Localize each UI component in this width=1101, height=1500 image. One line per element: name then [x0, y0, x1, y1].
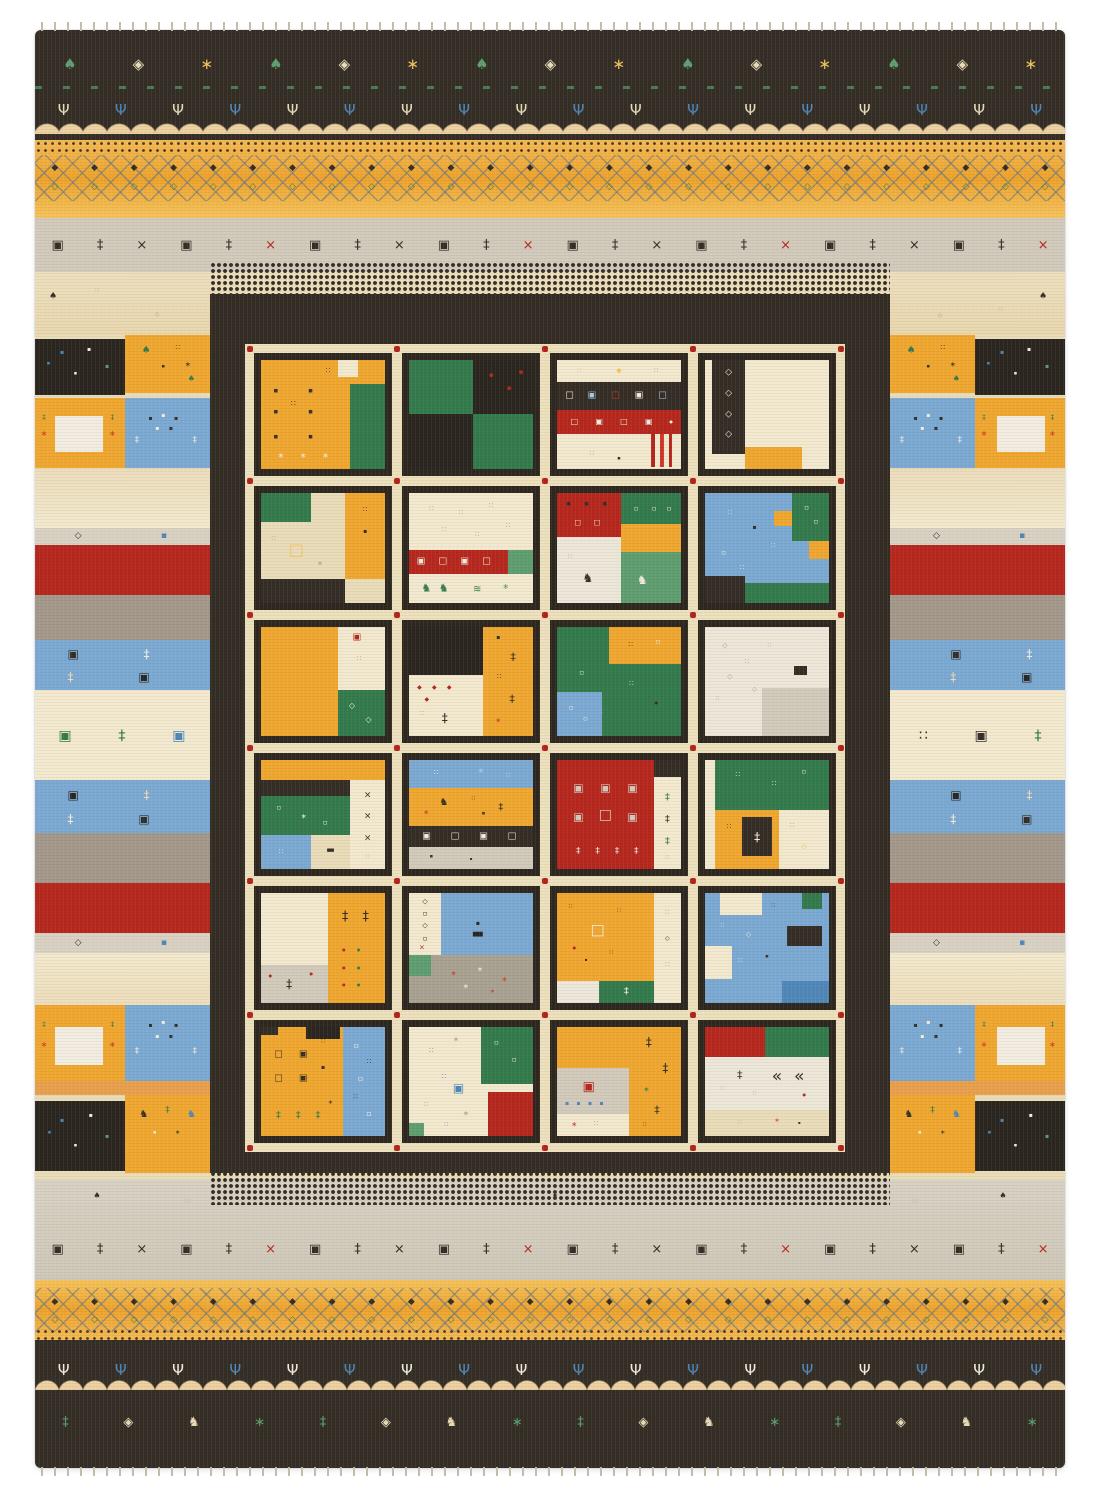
motif-glyph: ▪ [174, 1023, 178, 1029]
motif-glyph: ◆ [289, 1298, 296, 1307]
grid-cell-r6c2: ∷∗∷▣∷∗∷▫▫ [402, 1020, 540, 1143]
motif-glyph: ∷ [441, 1073, 445, 1080]
motif-glyph: ∷ [185, 1199, 189, 1205]
patch-block: ♞ [621, 552, 681, 602]
motif-glyph: ∷ [715, 696, 719, 702]
motif-glyph: ◇ [844, 1316, 851, 1325]
motif-glyph: ∷ [568, 554, 572, 560]
motif-glyph: ◇ [487, 183, 494, 192]
patch-block [997, 416, 1045, 452]
motif-glyph: ∷ [753, 1091, 757, 1097]
grid-corner-dot [690, 1145, 696, 1151]
motif-glyph: ▣ [180, 239, 192, 252]
motif-glyph: ▫ [423, 911, 428, 918]
motif-glyph: ◈ [381, 1416, 391, 1429]
motif-glyph: ▣ [58, 729, 71, 743]
motif-glyph: ◇ [368, 183, 375, 192]
motif-glyph: ▫ [358, 1075, 363, 1083]
motif-glyph: ▪ [585, 958, 588, 962]
patch-block: ◇▫◇▫× [409, 893, 441, 954]
grid-corner-dot [247, 1012, 253, 1018]
motif-glyph: Ψ [973, 103, 985, 118]
motif-glyph: ∷ [459, 510, 463, 517]
motif-glyph: ◆ [170, 1298, 177, 1307]
motif-glyph: ∷ [444, 1122, 448, 1128]
motif-glyph: ◆ [447, 685, 452, 691]
motif-glyph: ‡ [286, 978, 292, 990]
motif-glyph: ▪ [174, 416, 178, 422]
motif-glyph: ‡ [483, 239, 490, 252]
patch-block: ♞‡♞▪∗ [890, 1095, 975, 1157]
motif-glyph: Ψ [458, 1363, 470, 1378]
motif-glyph: ∗ [477, 966, 483, 973]
motif-glyph: ∷ [919, 729, 928, 743]
grid-corner-dot [247, 878, 253, 884]
patch-block [787, 926, 822, 946]
motif-glyph: ◆ [962, 1298, 969, 1307]
motif-glyph: ♞ [703, 1416, 715, 1429]
motif-glyph: ◇ [368, 1316, 375, 1325]
motif-glyph: ◇ [91, 183, 98, 192]
motif-glyph: ● [342, 948, 346, 952]
motif-glyph: Ψ [687, 103, 699, 118]
motif-glyph: Ψ [229, 103, 241, 118]
motif-glyph: ▪ [169, 1034, 173, 1040]
motif-glyph: ▪ [1019, 532, 1025, 541]
grid-corner-dot [247, 745, 253, 751]
motif-glyph: ▫ [512, 1056, 517, 1063]
motif-glyph: Ψ [744, 1363, 756, 1378]
motif-glyph: × [651, 239, 662, 252]
motif-glyph: ◇ [645, 183, 652, 192]
motif-glyph: ∗ [490, 989, 495, 995]
patch-block: ‡●● [261, 965, 328, 1002]
motif-glyph: ∷ [441, 527, 445, 534]
motif-glyph: ▣ [573, 811, 583, 822]
patch-block: ««‡∷●∷ [705, 1057, 829, 1109]
patch-block: ▪▪▪□□ [557, 493, 621, 537]
patch-block [720, 893, 762, 915]
motif-glyph: ● [654, 701, 658, 705]
motif-glyph: ▣ [695, 1243, 707, 1256]
motif-glyph: ● [669, 420, 673, 424]
motif-glyph: ◈ [751, 57, 763, 72]
motif-glyph: ▣ [567, 239, 579, 252]
motif-glyph: ◈ [957, 57, 969, 72]
motif-glyph: ◇ [804, 1316, 811, 1325]
grid-corner-dot [690, 878, 696, 884]
patch-block: ▫▫▫ [621, 493, 681, 524]
motif-glyph: ▪ [74, 371, 77, 376]
motif-glyph: ‡ [998, 1243, 1005, 1256]
motif-glyph: ◇ [725, 183, 732, 192]
patch-block: ▪▪▪▪▪ [975, 1101, 1065, 1171]
motif-glyph: ▫ [494, 1039, 499, 1046]
grid-corner-dot [394, 612, 400, 618]
motif-glyph: Ψ [573, 103, 585, 118]
motif-glyph: ∗ [502, 583, 509, 591]
patch-block: ▪▪▪▪▪‡‡ [125, 1005, 210, 1081]
motif-glyph: ∷ [628, 642, 632, 649]
motif-glyph: × [364, 813, 372, 822]
motif-glyph: Ψ [115, 1363, 127, 1378]
motif-glyph: ▣ [180, 1243, 192, 1256]
motif-glyph: ◇ [329, 1316, 336, 1325]
motif-glyph: ◇ [1002, 183, 1009, 192]
motif-glyph: ∗ [512, 1416, 523, 1429]
motif-glyph: ▣ [138, 671, 149, 683]
motif-glyph: ◆ [685, 1298, 692, 1307]
patch-block [409, 955, 431, 977]
motif-glyph: ◇ [746, 931, 751, 938]
patch-block [557, 981, 599, 1003]
motif-glyph: ‡ [97, 239, 104, 252]
motif-glyph: ∗ [981, 430, 988, 438]
motif-glyph: Ψ [916, 1363, 928, 1378]
motif-glyph: ▣ [453, 1082, 464, 1094]
motif-glyph: ◆ [210, 1298, 217, 1307]
motif-glyph: ♞ [637, 574, 648, 586]
motif-glyph: ◇ [923, 183, 930, 192]
motif-glyph: ∷ [434, 769, 438, 776]
motif-glyph: ◆ [566, 1298, 573, 1307]
patch-block: ∷ [261, 835, 311, 869]
motif-glyph: ‡ [342, 911, 349, 924]
motif-glyph: ‡ [135, 1048, 140, 1057]
motif-glyph: ▪ [274, 433, 279, 440]
motif-row: ◇◇◇◇◇◇◇◇◇◇◇◇◇◇◇◇◇◇◇◇◇◇◇◇◇◇ [35, 1310, 1065, 1330]
motif-glyph: ‡ [737, 1070, 743, 1081]
motif-glyph: ▣ [460, 558, 469, 567]
motif-glyph: × [419, 945, 425, 952]
motif-glyph: ▫ [276, 804, 281, 811]
patch-block: ∷∷▫ [715, 760, 829, 810]
motif-glyph: ♠ [142, 346, 151, 356]
motif-glyph: ♠ [999, 1192, 1006, 1200]
motif-glyph: ∗ [451, 970, 457, 977]
motif-glyph: ◆ [447, 1298, 454, 1307]
motif-glyph: ◇ [725, 1316, 732, 1325]
motif-glyph: Ψ [859, 103, 871, 118]
motif-glyph: ∷ [740, 564, 744, 571]
motif-glyph: ▪ [321, 1065, 325, 1071]
motif-glyph: ♞ [961, 1416, 973, 1429]
motif-glyph: ♠ [475, 57, 488, 72]
grid-cell-r4c2: ∷∗∷♞∷‡∗▪▣□▣□▪▪ [402, 753, 540, 876]
motif-glyph: ▪ [308, 409, 313, 416]
motif-glyph: ◇ [606, 1316, 613, 1325]
motif-glyph: ▪ [74, 1143, 77, 1148]
motif-glyph: ▫ [579, 669, 584, 676]
motif-glyph: □ [482, 558, 491, 567]
grid-corner-dot [838, 346, 844, 352]
motif-glyph: □ [611, 392, 620, 401]
motif-glyph: ∷ [321, 1039, 325, 1045]
motif-glyph: ◆ [91, 164, 98, 173]
patch-block: ◆◆◆◆‡∷ [409, 675, 483, 736]
motif-glyph: ▣ [299, 1051, 308, 1060]
motif-glyph: ◆ [1002, 164, 1009, 173]
motif-glyph: ◆ [210, 164, 217, 173]
patch-block: ‡‡∗‡∷ [629, 1027, 681, 1136]
grid-corner-dot [838, 1145, 844, 1151]
motif-glyph: ◆ [804, 1298, 811, 1307]
patch-block [488, 1092, 533, 1136]
motif-glyph: ▫ [634, 505, 639, 512]
motif-glyph: □ [289, 542, 304, 558]
motif-row: ΨΨΨΨΨΨΨΨΨΨΨΨΨΨΨΨΨΨ [35, 90, 1065, 130]
motif-glyph: ‡ [957, 1048, 962, 1057]
motif-glyph: ◆ [764, 164, 771, 173]
motif-glyph: Ψ [515, 1363, 527, 1378]
motif-glyph: ▪ [162, 364, 165, 369]
motif-glyph: ◆ [725, 1298, 732, 1307]
motif-glyph: Ψ [573, 1363, 585, 1378]
motif-row: ▣‡×▣‡×▣‡×▣‡×▣‡×▣‡×▣‡×▣‡× [35, 1232, 1065, 1266]
motif-glyph: ◆ [131, 164, 138, 173]
motif-glyph: ‡ [869, 1243, 876, 1256]
motif-glyph: ∷ [654, 367, 658, 374]
motif-glyph: ∷ [665, 910, 669, 917]
motif-glyph: ▪ [155, 426, 159, 432]
motif-glyph: ∗ [644, 1087, 650, 1094]
motif-glyph: ◇ [764, 183, 771, 192]
patch-block: □∷∷●∷▪ [557, 893, 654, 980]
motif-glyph: ∗ [818, 57, 831, 72]
motif-glyph: ◆ [368, 1298, 375, 1307]
motif-glyph: ◆ [447, 164, 454, 173]
motif-glyph: ◇ [447, 183, 454, 192]
grid-corner-dot [690, 478, 696, 484]
motif-glyph: Ψ [630, 1363, 642, 1378]
motif-glyph: ‡ [612, 239, 619, 252]
patch-block: ▣▪▪▪▪ [557, 1068, 629, 1114]
motif-glyph: × [909, 239, 920, 252]
motif-glyph: ◇ [75, 532, 82, 541]
motif-glyph: ▪ [988, 1131, 991, 1136]
grid-corner-dot [247, 346, 253, 352]
grid-cell-r4c1: ▫∗▫×××∷∷▬ [254, 753, 392, 876]
motif-glyph: ∗ [185, 362, 191, 369]
patch-block: ▣▣▣▣□▣‡‡‡‡ [557, 760, 654, 869]
motif-glyph: ‡ [665, 837, 670, 847]
motif-glyph: ◇ [91, 1316, 98, 1325]
motif-glyph: Ψ [973, 1363, 985, 1378]
motif-glyph: ▣ [479, 832, 488, 841]
motif-glyph: ‡ [111, 1021, 115, 1028]
motif-glyph: □ [658, 392, 667, 401]
patch-block: ▪▬ [441, 893, 533, 954]
grid-corner-dot [542, 878, 548, 884]
motif-glyph: ▣ [438, 1243, 450, 1256]
motif-glyph: ◇ [606, 183, 613, 192]
motif-glyph: ◆ [51, 1298, 58, 1307]
patch-block: ◇◇◇◇ [712, 360, 744, 454]
motif-glyph: ▪ [987, 362, 990, 367]
patch-block: □▣□▣□ [557, 382, 681, 410]
motif-glyph: ● [489, 374, 493, 379]
motif-glyph: ♞ [446, 1416, 458, 1429]
motif-row: ◆◆◆◆◆◆◆◆◆◆◆◆◆◆◆◆◆◆◆◆◆◆◆◆◆◆ [35, 1292, 1065, 1312]
motif-glyph: ▪ [470, 857, 473, 861]
motif-glyph: ◇ [249, 1316, 256, 1325]
motif-glyph: ▪ [918, 1131, 921, 1136]
grid-corner-dot [690, 612, 696, 618]
band-top-dark: ♠◈∗♠◈∗♠◈∗♠◈∗♠◈∗ΨΨΨΨΨΨΨΨΨΨΨΨΨΨΨΨΨΨ [35, 30, 1065, 140]
motif-glyph: ♠ [1039, 293, 1047, 302]
motif-glyph: ▣ [573, 783, 583, 794]
patch-block [802, 893, 822, 908]
motif-glyph: « [772, 1069, 782, 1086]
motif-glyph: ◆ [487, 1298, 494, 1307]
motif-glyph: ▫ [667, 505, 672, 512]
motif-row: ΨΨΨΨΨΨΨΨΨΨΨΨΨΨΨΨΨΨ [35, 1352, 1065, 1388]
motif-glyph: ◆ [923, 164, 930, 173]
motif-glyph: ◈ [133, 57, 145, 72]
motif-glyph: ∷ [738, 1120, 742, 1126]
motif-glyph: ▪ [1014, 371, 1017, 376]
motif-glyph: ▪ [1027, 347, 1031, 353]
patch-block [705, 946, 732, 979]
motif-glyph: ‡ [67, 813, 73, 825]
motif-glyph: ‡ [646, 1036, 652, 1048]
grid-cell-r2c2: ∷∷∷∷∷∷▣□▣□♞♞≋∗ [402, 486, 540, 609]
motif-glyph: ◆ [844, 164, 851, 173]
grid-cell-r3c1: ▣∷◇◇ [254, 620, 392, 743]
motif-glyph: ◇ [665, 936, 670, 942]
patch-block [409, 627, 483, 675]
patch-block: ♞∷‡∗▪ [409, 788, 533, 825]
motif-glyph: ‡ [835, 1416, 842, 1429]
motif-glyph: ▣ [950, 789, 961, 801]
motif-glyph: ▪ [934, 1034, 938, 1040]
motif-glyph: ◇ [487, 1316, 494, 1325]
motif-glyph: ▪ [584, 501, 589, 508]
patch-block: ‡ [742, 817, 772, 856]
motif-glyph: ◇ [170, 183, 177, 192]
motif-glyph: ◆ [91, 1298, 98, 1307]
patch-block: ▪▪▪▪▪ [975, 339, 1065, 395]
motif-glyph: ● [573, 946, 577, 950]
motif-glyph: ‡ [135, 437, 140, 446]
motif-glyph: ▪ [274, 409, 279, 416]
motif-glyph: ◆ [1042, 164, 1049, 173]
patch-block: ▬ [311, 835, 351, 869]
motif-glyph: ◆ [417, 685, 422, 691]
motif-glyph: ▣ [953, 239, 965, 252]
motif-glyph: □ [620, 418, 628, 426]
motif-glyph: ♞ [439, 583, 449, 594]
motif-glyph: ‡ [950, 671, 956, 683]
motif-glyph: Ψ [802, 1363, 814, 1378]
grid-corner-dot [394, 1012, 400, 1018]
grid-corner-dot [542, 612, 548, 618]
patch-block: ∷▫ [609, 627, 681, 664]
motif-glyph: ▪ [1000, 1118, 1004, 1124]
motif-glyph: ∗ [1049, 1041, 1056, 1049]
motif-glyph: ● [342, 983, 346, 987]
motif-glyph: ◇ [527, 183, 534, 192]
motif-glyph: ∷ [279, 849, 283, 856]
motif-glyph: × [651, 1243, 662, 1256]
motif-glyph: ● [357, 948, 361, 952]
motif-glyph: × [1038, 1243, 1049, 1256]
grid-corner-dot [394, 1145, 400, 1151]
patch-block: ‡‡‡∷ [654, 777, 681, 869]
motif-glyph: ‡ [577, 1416, 584, 1429]
motif-glyph: ∷ [366, 854, 370, 860]
motif-glyph: ● [802, 1093, 806, 1097]
motif-glyph: ‡ [42, 1021, 46, 1028]
patch-block [409, 360, 473, 414]
motif-glyph: ▪ [430, 855, 433, 860]
motif-glyph: ▪ [148, 1023, 152, 1029]
motif-glyph: ▣ [352, 633, 361, 642]
band-gold-lattice-bottom: ◆◆◆◆◆◆◆◆◆◆◆◆◆◆◆◆◆◆◆◆◆◆◆◆◆◆◇◇◇◇◇◇◇◇◇◇◇◇◇◇… [35, 1280, 1065, 1340]
motif-glyph: ▪ [566, 501, 571, 508]
patch-block [890, 1157, 975, 1173]
motif-glyph: ‡ [42, 414, 46, 421]
motif-glyph: ◆ [804, 164, 811, 173]
motif-glyph: ∷ [790, 822, 794, 829]
motif-glyph: ‡ [67, 671, 73, 683]
grid-cell-r1c2: ●●● [402, 353, 540, 476]
motif-glyph: ▣ [172, 729, 185, 743]
motif-glyph: ∗ [301, 813, 307, 820]
patch-block [782, 981, 829, 1003]
motif-glyph: Ψ [287, 103, 299, 118]
motif-glyph: ‡ [998, 239, 1005, 252]
motif-glyph: ♞ [187, 1110, 196, 1120]
motif-glyph: ‡ [662, 1062, 668, 1074]
motif-glyph: ∗ [41, 1041, 48, 1049]
motif-glyph: ▣ [438, 239, 450, 252]
motif-glyph: ‡ [276, 1111, 281, 1121]
patch-block: ‡‡●●●●●● [328, 893, 385, 1002]
motif-glyph: ∷ [609, 950, 613, 956]
motif-glyph: ∗ [1049, 430, 1056, 438]
motif-glyph: ▪ [1045, 1134, 1049, 1140]
motif-glyph: ◆ [606, 164, 613, 173]
patch-block [125, 1157, 210, 1173]
motif-glyph: ▣ [595, 418, 603, 426]
motif-glyph: ◇ [1002, 1316, 1009, 1325]
motif-glyph: ◆ [685, 164, 692, 173]
motif-glyph: ▪ [765, 954, 768, 959]
motif-glyph: ▫ [804, 504, 809, 511]
motif-glyph: ◆ [527, 1298, 534, 1307]
grid-corner-dot [838, 1012, 844, 1018]
motif-glyph: Ψ [401, 103, 413, 118]
patch-block [35, 86, 1065, 89]
patch-block: ▫∗▫ [261, 796, 350, 835]
motif-glyph: ‡ [624, 987, 629, 997]
motif-glyph: ∗ [463, 984, 469, 991]
motif-glyph: ∷ [429, 1047, 433, 1054]
motif-glyph: ‡ [982, 414, 986, 421]
motif-row: ▣‡×▣‡×▣‡×▣‡×▣‡×▣‡×▣‡×▣‡× [35, 228, 1065, 262]
motif-row: ◇◇◇◇◇◇◇◇◇◇◇◇◇◇◇◇◇◇◇◇◇◇◇◇◇◇ [35, 177, 1065, 197]
patch-block: ▣□▣□ [409, 550, 508, 574]
motif-glyph: ▪ [753, 525, 757, 531]
motif-glyph: ▪ [496, 635, 500, 641]
motif-glyph: ▫ [656, 639, 661, 646]
patch-block [621, 524, 681, 552]
patch-block: ▪▪▪▪▪‡‡ [125, 398, 210, 468]
motif-glyph: ▪ [105, 364, 109, 370]
grid-corner-dot [542, 745, 548, 751]
motif-glyph: ♞ [583, 572, 594, 584]
